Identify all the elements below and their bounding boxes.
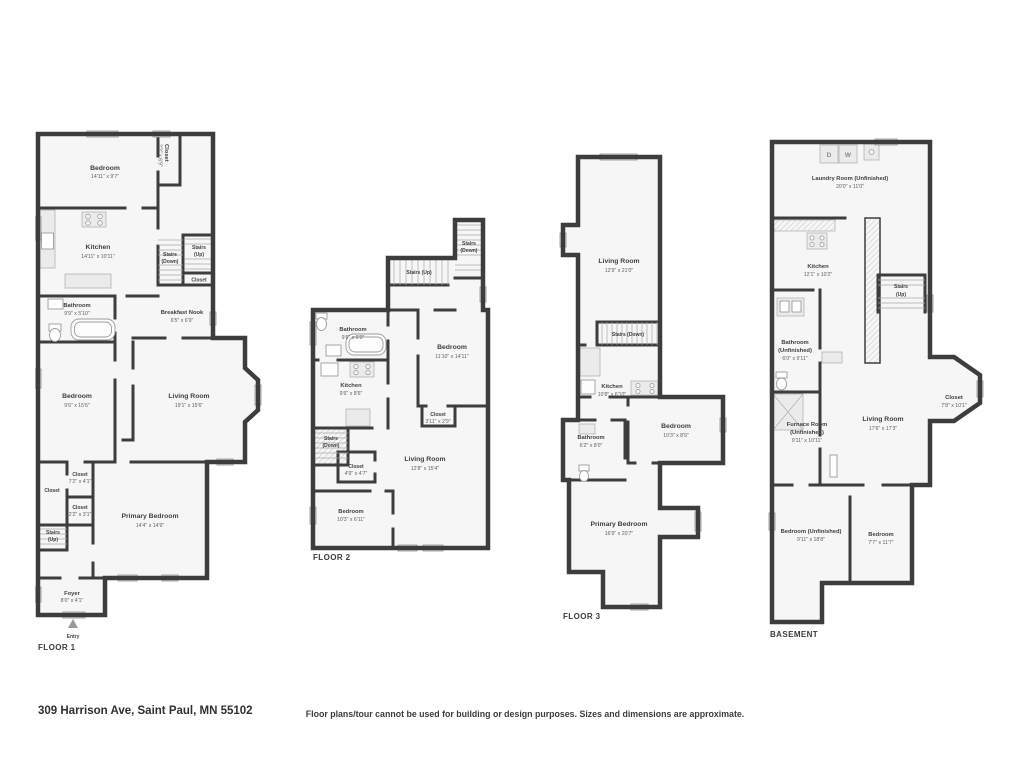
stove-icon xyxy=(82,212,106,227)
room-dims: 10'3" x 6'11" xyxy=(337,517,365,523)
property-address: 309 Harrison Ave, Saint Paul, MN 55102 xyxy=(38,705,253,717)
sink-icon xyxy=(581,380,595,394)
room-dims: 6'5" x 6'9" xyxy=(171,318,194,324)
room-label: Bedroom xyxy=(661,423,691,430)
room-label: Living Room xyxy=(598,258,639,265)
room-dims: (Down) xyxy=(323,443,340,449)
room-dims: 12'9" x 21'0" xyxy=(605,268,634,274)
basement-title: BASEMENT xyxy=(770,630,818,639)
toilet-icon xyxy=(49,324,61,342)
room-label: Living Room xyxy=(862,416,903,423)
room-label: Kitchen xyxy=(86,244,111,251)
room-dims: 16'9" x 20'7" xyxy=(605,531,634,537)
room-dims: 14'4" x 14'9" xyxy=(136,523,165,529)
toilet-icon xyxy=(316,313,327,331)
room-dims: 11'10" x 14'11" xyxy=(435,354,469,360)
room-label: Bedroom xyxy=(437,344,467,351)
room-label: Closet xyxy=(191,278,207,284)
cabinet-icon xyxy=(822,352,842,363)
floor2-footprint xyxy=(313,220,488,548)
room-dims: 9'6" x 8'6" xyxy=(340,391,363,397)
floor1-plan: Bedroom 14'11" x 9'7" Closet 2'2" x 6'9"… xyxy=(35,128,265,658)
room-label2: (Unfinished) xyxy=(778,348,812,354)
room-label: Closet xyxy=(945,395,963,401)
kitchen-island xyxy=(65,274,111,288)
room-dims: 10'3" x 8'9" xyxy=(663,433,689,439)
room-label: Closet xyxy=(348,464,364,470)
room-label: Stairs (Up) xyxy=(406,270,432,276)
room-dims: 9'6" x 15'6" xyxy=(64,403,90,409)
sink-icon xyxy=(321,363,338,376)
room-label: Kitchen xyxy=(807,264,829,270)
room-label: Bedroom (Unfinished) xyxy=(781,529,842,535)
room-dims: 12'1" x 10'2" xyxy=(804,272,833,278)
room-label: Closet xyxy=(72,472,88,478)
washer-icon: W xyxy=(839,145,857,163)
water-heater-icon xyxy=(864,144,879,160)
room-label: Bathroom xyxy=(63,303,90,309)
room-label: Primary Bedroom xyxy=(590,521,647,528)
room-dims: 17'6" x 17'3" xyxy=(869,426,898,432)
floor2-title: FLOOR 2 xyxy=(313,553,351,562)
room-label: Stairs xyxy=(462,241,476,247)
entry-label: Entry xyxy=(67,634,80,640)
bathtub-icon xyxy=(71,319,115,340)
room-label: Kitchen xyxy=(601,384,623,390)
kitchen-counter xyxy=(580,348,600,376)
svg-text:D: D xyxy=(827,152,832,159)
room-label: Bedroom xyxy=(338,509,363,515)
room-dims: (Down) xyxy=(162,259,179,265)
room-dims: 14'11" x 10'11" xyxy=(81,254,115,260)
room-dims: 8'0" x 4'1" xyxy=(61,598,84,604)
stove-icon xyxy=(631,381,658,395)
shower-icon xyxy=(579,424,595,434)
room-dims: 6'0" x 9'11" xyxy=(782,356,807,362)
room-label: Bathroom xyxy=(339,327,366,333)
room-dims: 2'2" x 3'1" xyxy=(69,512,92,518)
room-dims: 3'11" x 2'9" xyxy=(425,419,450,425)
room-dims: (Down) xyxy=(461,248,478,254)
floorplan-canvas: Bedroom 14'11" x 9'7" Closet 2'2" x 6'9"… xyxy=(0,0,1024,768)
room-dims: 7'8" x 10'1" xyxy=(941,403,967,409)
room-dims: (Up) xyxy=(48,537,58,543)
room-dims: 12'8" x 15'4" xyxy=(411,466,440,472)
vanity-sink-icon xyxy=(777,298,804,316)
room-label: Stairs xyxy=(46,530,60,536)
support-column xyxy=(830,455,837,477)
room-label: Primary Bedroom xyxy=(121,513,178,520)
room-label: Living Room xyxy=(168,393,209,400)
room-label2: (Unfinished) xyxy=(790,430,824,436)
room-label: Bedroom xyxy=(90,165,120,172)
room-label: Living Room xyxy=(404,456,445,463)
room-dims: 20'0" x 11'0" xyxy=(836,184,864,190)
basement-plan: D W xyxy=(762,135,1007,645)
room-label: Furnace Room xyxy=(787,422,828,428)
floor1-title: FLOOR 1 xyxy=(38,643,76,652)
sink-icon xyxy=(42,233,54,249)
room-label: Foyer xyxy=(64,591,81,597)
room-label: Closet xyxy=(44,488,60,494)
sink-icon xyxy=(326,345,341,356)
entry-arrow-icon xyxy=(68,619,78,628)
room-label: Bathroom xyxy=(781,340,808,346)
room-label: Bathroom xyxy=(577,435,604,441)
room-dims: 9'11" x 18'8" xyxy=(797,537,825,543)
room-label: Stairs xyxy=(894,284,908,290)
dryer-icon: D xyxy=(820,145,838,163)
room-label: Stairs (Down) xyxy=(612,332,645,338)
room-label: Closet xyxy=(430,412,446,418)
stove-icon xyxy=(807,233,827,249)
room-dims: 19'1" x 15'6" xyxy=(175,403,204,409)
room-label: Bedroom xyxy=(868,532,893,538)
room-label: Closet xyxy=(72,505,88,511)
room-label: Stairs xyxy=(324,436,338,442)
room-dims: 6'2" x 8'0" xyxy=(580,443,603,449)
basement-footprint xyxy=(772,142,980,622)
fridge-icon xyxy=(346,409,370,426)
room-dims: 14'11" x 9'7" xyxy=(91,174,119,180)
toilet-icon xyxy=(776,372,787,390)
sink-icon xyxy=(48,299,63,309)
room-label: Bedroom xyxy=(62,393,92,400)
svg-text:W: W xyxy=(845,152,852,159)
room-dims: 9'9" x 5'10" xyxy=(64,311,90,317)
disclaimer-text: Floor plans/tour cannot be used for buil… xyxy=(300,709,750,719)
room-dims: 9'6" x 6'0" xyxy=(342,335,365,341)
room-dims: (Up) xyxy=(194,252,204,258)
floor3-title: FLOOR 3 xyxy=(563,612,601,621)
room-label: Breakfast Nook xyxy=(161,310,204,316)
room-label: Closet xyxy=(163,144,169,162)
room-label: Stairs xyxy=(163,252,177,258)
room-label: Kitchen xyxy=(340,383,362,389)
room-dims: 10'8" x 6'10" xyxy=(598,392,627,398)
room-dims: 4'9" x 4'7" xyxy=(345,471,368,477)
room-dims: 9'11" x 10'11" xyxy=(792,438,823,444)
room-label: Stairs xyxy=(192,245,206,251)
room-label: Laundry Room (Unfinished) xyxy=(812,176,888,182)
floor3-plan: Living Room 12'9" x 21'0" Stairs (Down) … xyxy=(555,148,755,628)
room-dims: 2'2" x 6'9" xyxy=(157,144,163,167)
floor2-plan: Stairs (Down) Stairs (Up) Bathroom 9'6" … xyxy=(308,213,498,568)
room-dims: 7'2" x 4'1" xyxy=(69,479,92,485)
room-dims: (Up) xyxy=(896,292,906,298)
floor1-footprint xyxy=(38,134,258,615)
kitchen-counter xyxy=(773,220,835,231)
toilet-icon xyxy=(579,465,589,482)
room-dims: 7'7" x 11'7" xyxy=(868,540,893,546)
stove-icon xyxy=(350,362,374,377)
